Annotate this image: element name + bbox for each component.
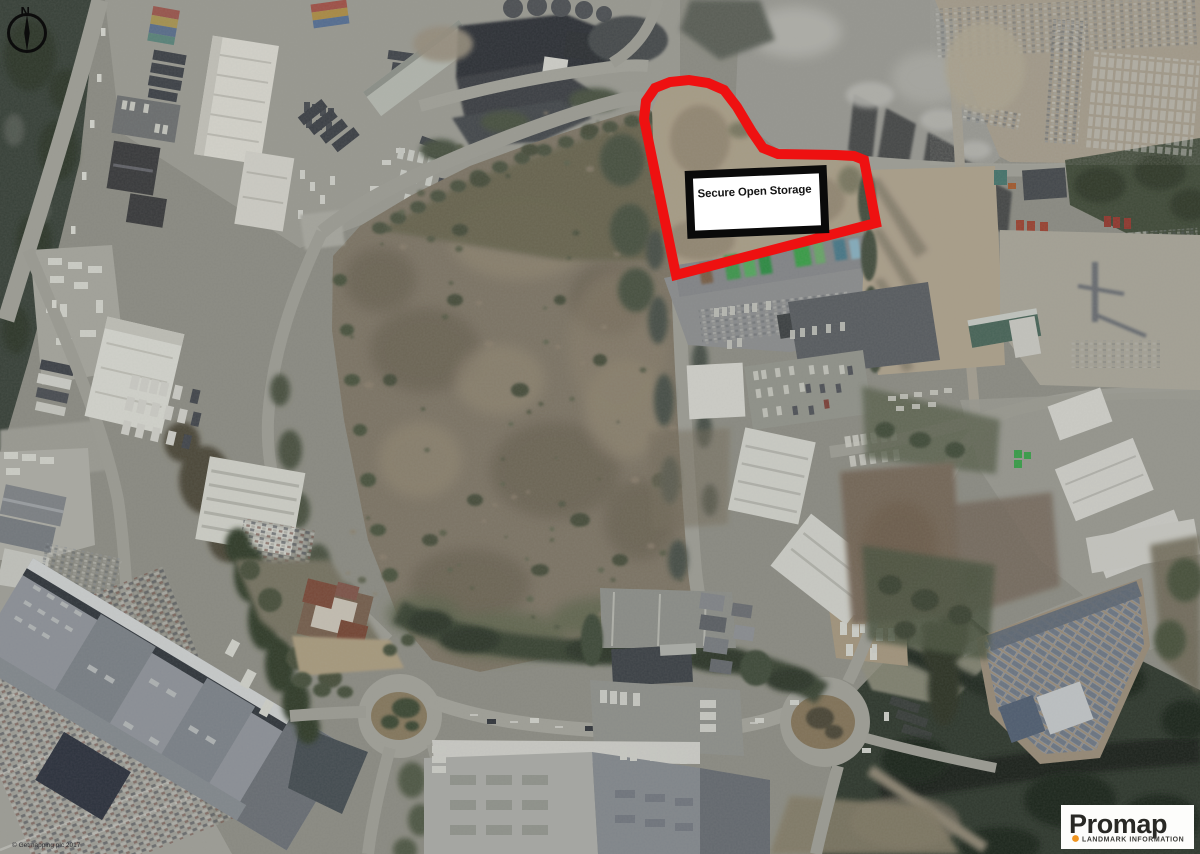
svg-text:Promap: Promap [1069, 809, 1167, 839]
svg-text:N: N [21, 4, 30, 19]
svg-text:LANDMARK INFORMATION: LANDMARK INFORMATION [1082, 837, 1184, 844]
svg-text:© Getmapping plc 2017: © Getmapping plc 2017 [12, 841, 81, 849]
